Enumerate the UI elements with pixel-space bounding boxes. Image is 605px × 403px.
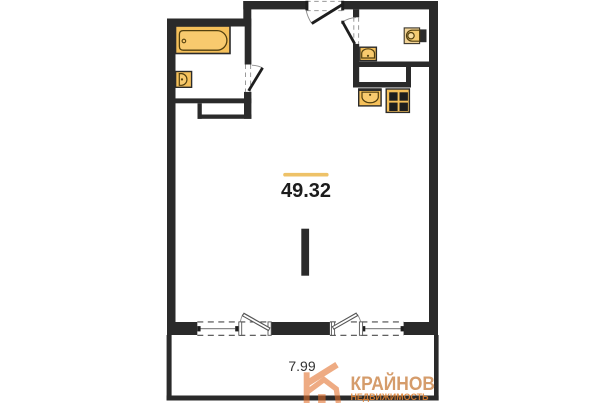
svg-text:49.32: 49.32 bbox=[281, 180, 331, 202]
svg-text:7.99: 7.99 bbox=[288, 358, 315, 374]
svg-text:НЕДВИЖИМОСТЬ: НЕДВИЖИМОСТЬ bbox=[351, 392, 429, 403]
